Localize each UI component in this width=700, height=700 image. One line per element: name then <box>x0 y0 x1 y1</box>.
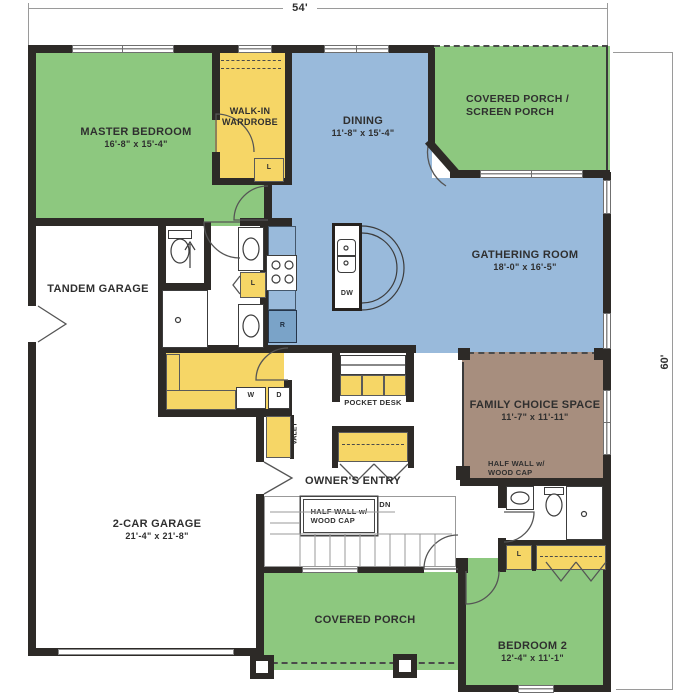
wall <box>28 218 204 226</box>
walk-in-wardrobe-label: WALK-IN WARDROBE <box>217 106 283 128</box>
window <box>603 313 611 349</box>
pocket-desk-cabinet <box>340 375 362 396</box>
refrigerator-label: R <box>268 322 297 330</box>
kitchen-counter <box>268 226 296 257</box>
bath2-toilet-tank <box>544 487 564 495</box>
porch-bottom-edge <box>262 662 464 664</box>
bedroom-2-label: BEDROOM 2 12'-4" x 11'-1" <box>460 640 605 664</box>
toilet-bowl <box>546 494 562 516</box>
closet-door-mark <box>233 276 240 294</box>
pocket-desk-cabinet <box>362 375 384 396</box>
toilet-bowl <box>171 239 189 263</box>
window <box>324 45 357 53</box>
wall <box>456 466 470 480</box>
gathering-room-label: GATHERING ROOM 18'-0" x 16'-5" <box>440 249 610 273</box>
window <box>518 685 554 693</box>
linen-label: L <box>254 164 284 172</box>
porch-post <box>250 655 274 679</box>
dimension-tick <box>616 689 673 690</box>
wall <box>256 494 264 656</box>
room-bedroom-2 <box>458 558 608 690</box>
window <box>72 45 124 53</box>
bath2-shower <box>566 486 603 540</box>
wall <box>458 348 470 360</box>
washer-label: W <box>236 392 266 400</box>
wall <box>428 48 435 145</box>
family-choice-open-edge <box>468 352 598 354</box>
wall <box>332 346 340 402</box>
linen-label: L <box>506 551 532 559</box>
pocket-desk-label: POCKET DESK <box>330 398 416 407</box>
master-bedroom-label: MASTER BEDROOM 16'-8" x 15'-4" <box>48 126 224 150</box>
floor-plan: HALF WALL w/ WOOD CAP 54' 60' <box>0 0 700 700</box>
dining-label: DINING 11'-8" x 15'-4" <box>313 115 413 139</box>
dimension-tick <box>607 3 608 45</box>
porch-post <box>393 654 417 678</box>
dimension-tick <box>613 52 673 53</box>
window <box>531 170 583 178</box>
dimension-tick <box>28 3 29 45</box>
direction-arrow <box>185 242 195 268</box>
wall <box>204 222 211 290</box>
window <box>122 45 174 53</box>
range-cooktop <box>266 255 297 291</box>
owners-entry-label: OWNER'S ENTRY <box>283 475 423 488</box>
valet-cabinet <box>266 416 291 458</box>
wall <box>498 538 506 572</box>
dimension-line-top <box>28 8 608 9</box>
vanity-sink <box>238 227 264 271</box>
laundry-cabinet <box>166 390 236 410</box>
pocket-desk-shelf <box>340 355 406 375</box>
dimension-height: 60' <box>659 345 671 379</box>
toilet-tank <box>168 230 192 239</box>
porch-top-edge <box>434 45 608 47</box>
two-car-garage-label: 2-CAR GARAGE 21'-4" x 21'-8" <box>77 518 237 542</box>
pocket-desk-cabinet <box>384 375 406 396</box>
garage-door <box>58 649 234 655</box>
wall <box>28 45 36 306</box>
wall <box>498 486 506 508</box>
half-wall-box: HALF WALL w/ WOOD CAP <box>303 499 375 533</box>
door-arc <box>504 512 534 542</box>
dryer-label: D <box>268 392 290 400</box>
closet-rod <box>342 444 404 445</box>
shower <box>162 290 208 348</box>
wall <box>285 48 292 184</box>
porch-right-edge <box>606 46 608 172</box>
island-sink <box>337 239 356 273</box>
dishwasher-label: DW <box>332 290 362 298</box>
vanity-sink <box>238 304 264 348</box>
valet-label: VALET <box>292 419 299 449</box>
window <box>238 45 272 53</box>
window <box>356 45 389 53</box>
screen-porch-label: COVERED PORCH / SCREEN PORCH <box>466 93 596 118</box>
linen-label: L <box>240 280 266 288</box>
wall <box>594 348 606 360</box>
door <box>38 306 66 342</box>
half-wall-note: HALF WALL w/ WOOD CAP <box>311 507 368 526</box>
covered-porch-label: COVERED PORCH <box>295 614 435 627</box>
closet-rod <box>540 556 602 557</box>
family-half-wall-note: HALF WALL w/ WOOD CAP <box>488 459 568 478</box>
wall <box>458 558 466 692</box>
stairs-dn-label: DN <box>372 500 398 509</box>
wall <box>408 426 414 468</box>
dimension-width: 54' <box>283 2 317 15</box>
tandem-garage-label: TANDEM GARAGE <box>40 283 156 296</box>
window <box>480 170 532 178</box>
bath2-vanity <box>506 486 534 510</box>
family-choice-label: FAMILY CHOICE SPACE 11'-7" x 11'-11" <box>462 399 608 423</box>
wall <box>256 417 264 462</box>
window <box>603 180 611 214</box>
bedroom2-wardrobe <box>536 545 606 570</box>
wall <box>406 346 414 402</box>
wardrobe-rod <box>221 68 281 69</box>
hall-closet <box>338 432 408 462</box>
wall <box>460 478 606 486</box>
wardrobe-rod <box>221 60 281 61</box>
wall <box>264 183 272 226</box>
wall <box>28 342 36 656</box>
dimension-line-right <box>672 52 673 690</box>
window <box>603 422 611 455</box>
kitchen-counter <box>268 290 296 310</box>
